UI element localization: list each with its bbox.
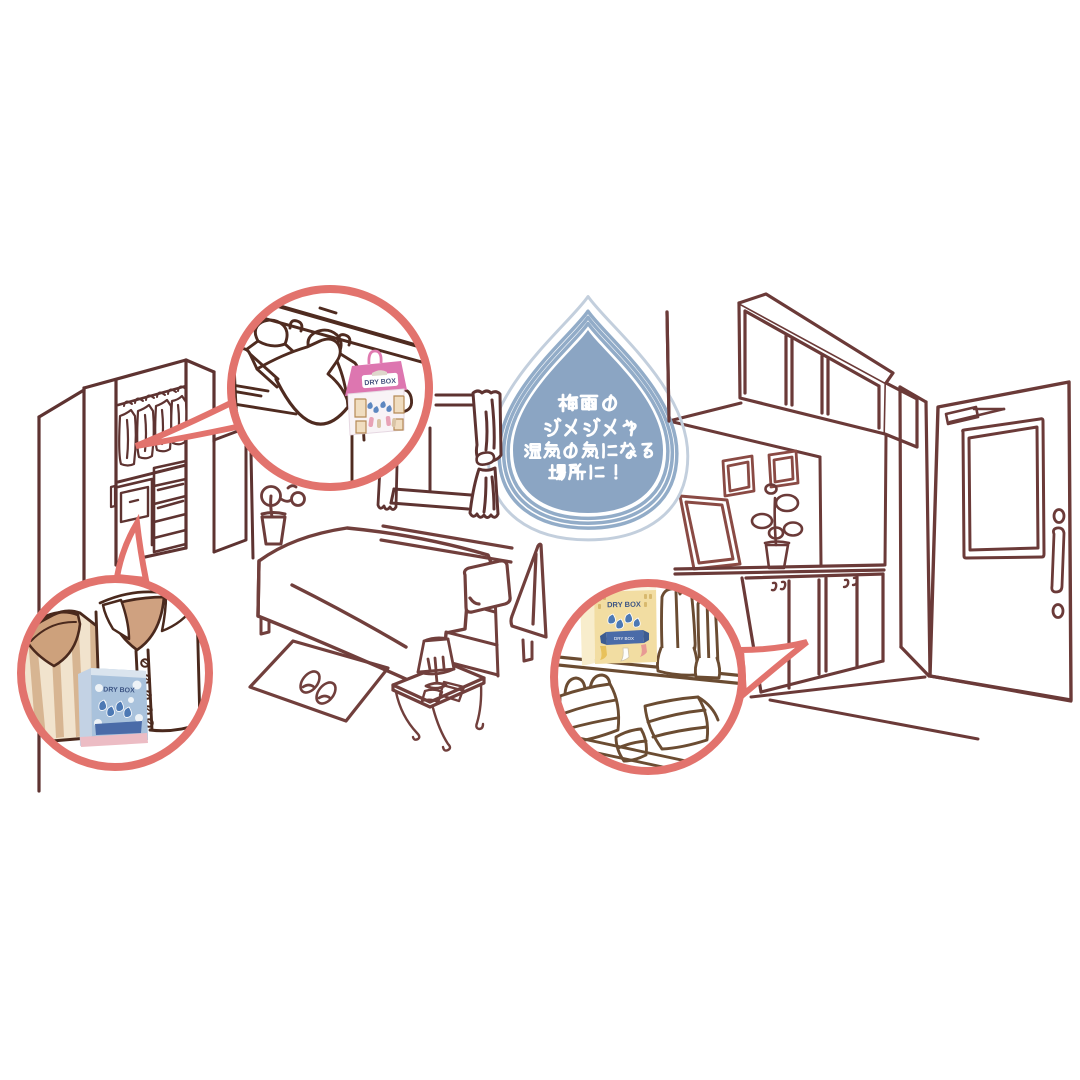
svg-text:DRY BOX: DRY BOX (614, 636, 634, 641)
svg-text:DRY BOX: DRY BOX (607, 600, 641, 610)
svg-text:DRY BOX: DRY BOX (103, 686, 135, 694)
